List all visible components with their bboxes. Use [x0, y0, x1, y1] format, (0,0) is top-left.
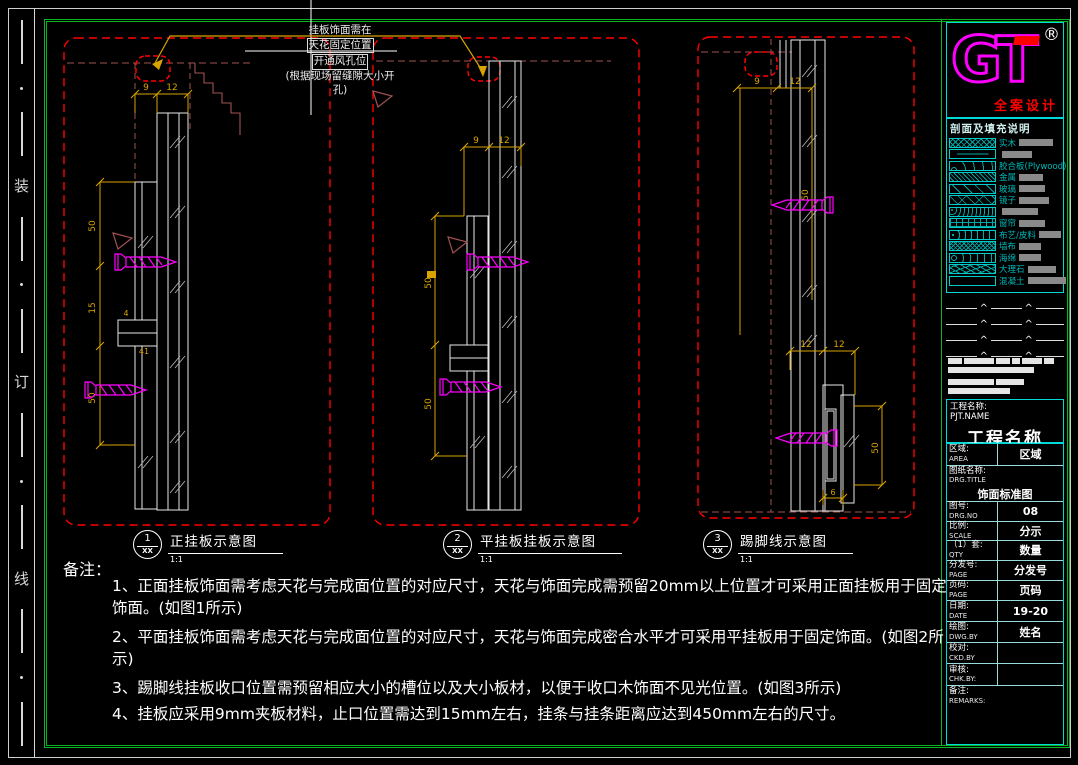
hatch-swatch-icon [949, 161, 996, 171]
row-drawn-by: 绘图:DWG.BY 姓名 [947, 622, 1063, 643]
legend-item: 布艺/皮料 [949, 229, 1063, 241]
hatch-swatch-icon [949, 253, 996, 263]
figure-label-2: 2 XX 平挂板挂板示意图 1:1 [443, 530, 622, 564]
arrow-triangle-icon [448, 237, 467, 253]
project-label: 工程名称: [950, 402, 1060, 412]
svg-text:12: 12 [789, 77, 800, 87]
svg-text:9: 9 [143, 83, 149, 93]
dimension-lines [435, 147, 521, 456]
hatch-swatch-icon [949, 218, 996, 228]
svg-text:12: 12 [498, 136, 509, 146]
row-drawing-title: 图纸名称:DRG.TITLE 饰面标准图 [947, 466, 1063, 502]
svg-text:50: 50 [871, 442, 881, 454]
screw-icon [115, 254, 176, 270]
hatch-swatch-icon [949, 172, 996, 182]
cornice-steps [195, 63, 240, 135]
row-remarks: 备注:REMARKS: [947, 686, 1063, 744]
legend-item: 大理石 [949, 264, 1063, 276]
legend-item: 胶合板(Plywood) [949, 160, 1063, 172]
figure-label-1: 1 XX 正挂板示意图 1:1 [133, 530, 283, 564]
svg-text:12: 12 [166, 83, 177, 93]
notes-header: 备注： [63, 556, 111, 580]
project-label-en: PJT.NAME [950, 412, 1060, 422]
figure-title: 踢脚线示意图 [738, 530, 853, 554]
detail-drawing-1: 9 12 50 15 50 4 41 [62, 36, 332, 529]
row-date: 日期:DATE 19-20 [947, 601, 1063, 623]
screw-icon [776, 430, 837, 446]
svg-text:9: 9 [754, 77, 760, 87]
svg-text:50: 50 [424, 277, 434, 289]
row-drawing-no: 图号:DRG.NO 08 [947, 502, 1063, 522]
row-area: 区域:AREA 区域 [947, 444, 1063, 466]
dimension-lines [100, 94, 188, 445]
company-info-redacted [946, 356, 1068, 402]
legend-item: 金属 [949, 172, 1063, 184]
svg-text:6: 6 [830, 488, 835, 497]
hatch-swatch-icon [949, 195, 996, 205]
annotation-line: 天花固定位置 [307, 38, 374, 54]
figure-scale: 1:1 [478, 555, 622, 564]
legend-item: 海绵 [949, 252, 1063, 264]
hatch-swatch-icon [949, 276, 996, 286]
screw-icon [467, 254, 528, 270]
revision-rows: ^^ ^^ ^^ ^^ [946, 293, 1064, 355]
svg-text:9: 9 [473, 136, 479, 146]
vent-hole-marker [136, 56, 170, 81]
figure-title: 平挂板挂板示意图 [478, 530, 622, 554]
figure-scale: 1:1 [168, 555, 283, 564]
legend-item: 墙布 [949, 241, 1063, 253]
legend-item: 窗帘 [949, 218, 1063, 230]
vent-hole-marker [745, 52, 777, 76]
annotation-line: 开通风孔位 [312, 54, 369, 70]
svg-text:12: 12 [833, 340, 844, 350]
annotation-line: 孔) [281, 84, 399, 98]
material-legend: 剖面及填充说明 实木 胶合板(Plywood) 金属 玻璃 镜子 窗帘 布艺/皮… [946, 118, 1064, 293]
annotation-line: (根据现场留缝隙大小开 [281, 70, 399, 84]
registered-mark-icon: ® [1043, 25, 1060, 45]
figure-label-3: 3 XX 踢脚线示意图 1:1 [703, 530, 853, 564]
svg-text:4: 4 [123, 309, 128, 318]
hatch-swatch-icon [949, 230, 996, 240]
row-page: 页码:PAGE 页码 [947, 581, 1063, 601]
logo-tagline: 全案设计 [994, 95, 1058, 114]
legend-item: 镜子 [949, 195, 1063, 207]
figure-number-bubble: 1 XX [133, 530, 162, 559]
legend-item: 实木 [949, 137, 1063, 149]
figure-number-bubble: 2 XX [443, 530, 472, 559]
notes-list: 1、正面挂板饰面需考虑天花与完成面位置的对应尺寸，天花与饰面完成需预留20mm以… [112, 575, 952, 732]
figure-title: 正挂板示意图 [168, 530, 283, 554]
hatch-swatch-icon [949, 207, 996, 217]
hatch-swatch-icon [949, 149, 996, 159]
legend-item [949, 149, 1063, 161]
hatch-swatch-icon [949, 184, 996, 194]
svg-text:50: 50 [424, 398, 434, 410]
screw-icon [440, 379, 501, 395]
svg-text:15: 15 [88, 302, 98, 313]
row-scale: 比例:SCALE 分示 [947, 522, 1063, 541]
note-item: 1、正面挂板饰面需考虑天花与完成面位置的对应尺寸，天花与饰面完成需预留20mm以… [112, 575, 952, 619]
svg-text:50: 50 [801, 189, 811, 201]
legend-item [949, 206, 1063, 218]
company-logo-box: GT ® 全案设计 [946, 22, 1064, 118]
vent-hole-annotation: 挂板饰面需在 天花固定位置 开通风孔位 (根据现场留缝隙大小开 孔) [281, 24, 399, 97]
hatch-swatch-icon [949, 241, 996, 251]
hatch-swatch-icon [949, 138, 996, 148]
revision-row: ^^ [946, 293, 1064, 309]
row-qty: （1）套:QTY 数量 [947, 541, 1063, 561]
detail-drawing-3: 9 12 12 12 50 50 6 [696, 35, 916, 522]
svg-text:41: 41 [139, 347, 149, 356]
hatch-swatch-icon [949, 264, 996, 274]
dim-marker [427, 271, 436, 278]
row-checked-by: 校对:CKD.BY [947, 643, 1063, 664]
row-approved-by: 审核:CHK.BY: [947, 664, 1063, 686]
figure-number-bubble: 3 XX [703, 530, 732, 559]
legend-item: 玻璃 [949, 183, 1063, 195]
svg-text:50: 50 [88, 220, 98, 232]
legend-header: 剖面及填充说明 [950, 121, 1063, 136]
logo-red-accent [1013, 36, 1040, 45]
revision-row: ^^ [946, 325, 1064, 341]
wall-panels [450, 61, 521, 510]
titleblock-rows: 区域:AREA 区域 图纸名称:DRG.TITLE 饰面标准图 图号:DRG.N… [946, 443, 1064, 745]
row-dispatch-no: 分发号:PAGE 分发号 [947, 561, 1063, 581]
note-item: 3、踢脚线挂板收口位置需预留相应大小的槽位以及大小板材，以便于收口木饰面不见光位… [112, 677, 952, 699]
arrow-triangle-icon [113, 233, 132, 249]
project-name-box: 工程名称: PJT.NAME 工程名称 [946, 399, 1064, 443]
revision-row: ^^ [946, 341, 1064, 357]
figure-scale: 1:1 [738, 555, 853, 564]
note-item: 4、挂板应采用9mm夹板材料，止口位置需达到15mm左右，挂条与挂条距离应达到4… [112, 703, 952, 725]
cad-sheet: 装 订 线 [0, 0, 1078, 765]
screw-icon [85, 382, 146, 398]
svg-text:12: 12 [800, 340, 811, 350]
annotation-line: 挂板饰面需在 [281, 24, 399, 38]
detail-drawing-2: 9 12 50 50 [371, 36, 641, 529]
legend-item: 混凝土 [949, 275, 1063, 287]
note-item: 2、平面挂板饰面需考虑天花与完成面位置的对应尺寸，天花与饰面完成密合水平才可采用… [112, 626, 952, 670]
revision-row: ^^ [946, 309, 1064, 325]
